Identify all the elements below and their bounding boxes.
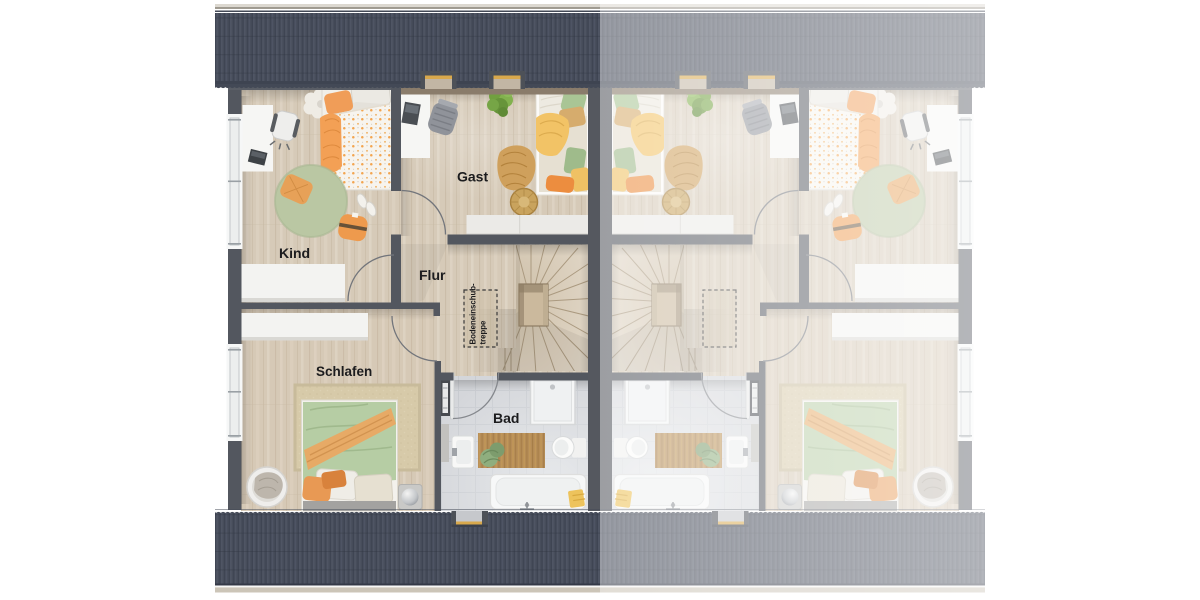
svg-text:Gast: Gast [457, 169, 488, 185]
svg-text:Bodeneinschub-: Bodeneinschub- [469, 283, 478, 344]
svg-text:treppe: treppe [479, 320, 488, 344]
svg-text:Schlafen: Schlafen [316, 364, 372, 379]
svg-text:Flur: Flur [419, 267, 446, 283]
svg-text:Bad: Bad [493, 410, 519, 426]
svg-text:Kind: Kind [279, 245, 310, 261]
